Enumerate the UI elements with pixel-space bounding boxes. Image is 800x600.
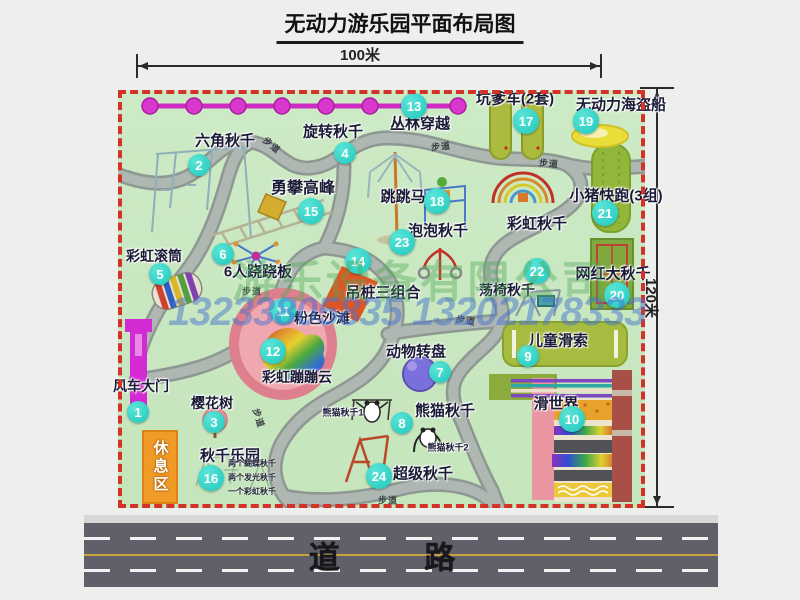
attraction-label-x25: 熊猫秋千1: [322, 406, 363, 419]
attraction-label-14: 吊桩三组合: [345, 282, 420, 303]
attraction-badge-22: 22: [524, 258, 550, 284]
attraction-label-2: 六角秋千: [195, 130, 255, 151]
attraction-badge-23: 23: [389, 229, 415, 255]
road-label: 道 路: [309, 533, 494, 578]
dim-width-tick-right: [600, 54, 602, 78]
attraction-label-5: 彩虹滚筒: [126, 246, 182, 266]
attraction-badge-8: 8: [391, 412, 413, 434]
attraction-label-11: 粉色沙滩: [294, 308, 350, 328]
attraction-label-3: 樱花树: [191, 393, 233, 413]
attraction-label-18: 跳跳马: [380, 186, 425, 207]
attraction-badge-18: 18: [424, 188, 450, 214]
dim-width-label: 100米: [340, 44, 380, 65]
attraction-label-x26: 熊猫秋千2: [427, 441, 468, 454]
rest-area-label: 休息区: [150, 440, 171, 494]
trail-label: 步道: [378, 494, 398, 507]
dim-width-line: [137, 65, 601, 67]
dim-height-arrow-bottom: [653, 496, 661, 505]
trail-label: 步道: [430, 139, 451, 154]
attraction-label-15: 勇攀高峰: [271, 174, 335, 198]
attraction-badge-11: 11: [270, 298, 296, 324]
trail-label: 步道: [538, 156, 559, 171]
trail-label: 步道: [250, 406, 269, 429]
attraction-badge-21: 21: [592, 200, 618, 226]
swing-park-note-3: 一个彩虹秋千: [228, 486, 276, 497]
attraction-badge-5: 5: [149, 263, 171, 285]
attraction-label-4: 旋转秋千: [303, 121, 363, 142]
attraction-badge-24: 24: [366, 463, 392, 489]
attraction-badge-17: 17: [513, 108, 539, 134]
page-title: 无动力游乐园平面布局图: [277, 8, 524, 44]
park-map: 风车大门1六角秋千2樱花树3旋转秋千4彩虹滚筒56人跷跷板6动物转盘7熊猫秋千8…: [118, 90, 645, 508]
road-shoulder: [84, 515, 718, 523]
dim-height-tick-bottom: [640, 506, 674, 508]
attraction-label-8: 熊猫秋千: [415, 400, 475, 421]
attraction-badge-19: 19: [573, 108, 599, 134]
attraction-label-24: 超级秋千: [393, 463, 453, 484]
attraction-badge-9: 9: [517, 345, 539, 367]
trail-label: 步道: [455, 312, 477, 328]
trail-label: 步道: [242, 285, 262, 298]
attraction-badge-1: 1: [127, 401, 149, 423]
attraction-badge-20: 20: [604, 282, 630, 308]
attraction-badge-6: 6: [212, 243, 234, 265]
map-labels-layer: 风车大门1六角秋千2樱花树3旋转秋千4彩虹滚筒56人跷跷板6动物转盘7熊猫秋千8…: [118, 90, 645, 508]
attraction-badge-7: 7: [429, 361, 451, 383]
dim-width-arrow-right: [590, 62, 599, 70]
attraction-label-21: 小猪快跑(3组): [569, 185, 662, 206]
attraction-label-9: 儿童滑索: [528, 330, 588, 351]
attraction-badge-4: 4: [334, 142, 356, 164]
swing-park-note-2: 两个发光秋千: [228, 472, 276, 483]
attraction-badge-2: 2: [188, 154, 210, 176]
attraction-label-6: 6人跷跷板: [224, 261, 292, 282]
screenshot-root: 无动力游乐园平面布局图 100米 120米: [0, 0, 800, 600]
trail-label: 步道: [260, 134, 284, 157]
dim-height-tick-top: [640, 87, 674, 89]
attraction-badge-10: 10: [559, 406, 585, 432]
attraction-label-23: 泡泡秋千: [408, 220, 468, 241]
dim-width-arrow-left: [139, 62, 148, 70]
attraction-label-1: 风车大门: [113, 376, 169, 396]
attraction-badge-12: 12: [260, 338, 286, 364]
attraction-label-22: 荡椅秋千: [479, 280, 535, 300]
attraction-badge-3: 3: [203, 411, 225, 433]
attraction-label-x24: 彩虹秋千: [507, 213, 567, 234]
attraction-badge-15: 15: [298, 198, 324, 224]
dim-width-tick-left: [136, 54, 138, 78]
swing-park-note-1: 两个蝴蝶秋千: [228, 458, 276, 469]
attraction-label-17: 坑爹车(2套): [476, 88, 554, 109]
rest-area: 休息区: [142, 430, 178, 504]
attraction-badge-16: 16: [198, 465, 224, 491]
attraction-badge-13: 13: [401, 93, 427, 119]
attraction-badge-14: 14: [345, 248, 371, 274]
attraction-label-12: 彩虹蹦蹦云: [262, 367, 332, 387]
attraction-label-20: 网红大秋千: [575, 263, 650, 284]
road: 道 路: [84, 523, 718, 587]
attraction-label-7: 动物转盘: [386, 341, 446, 362]
